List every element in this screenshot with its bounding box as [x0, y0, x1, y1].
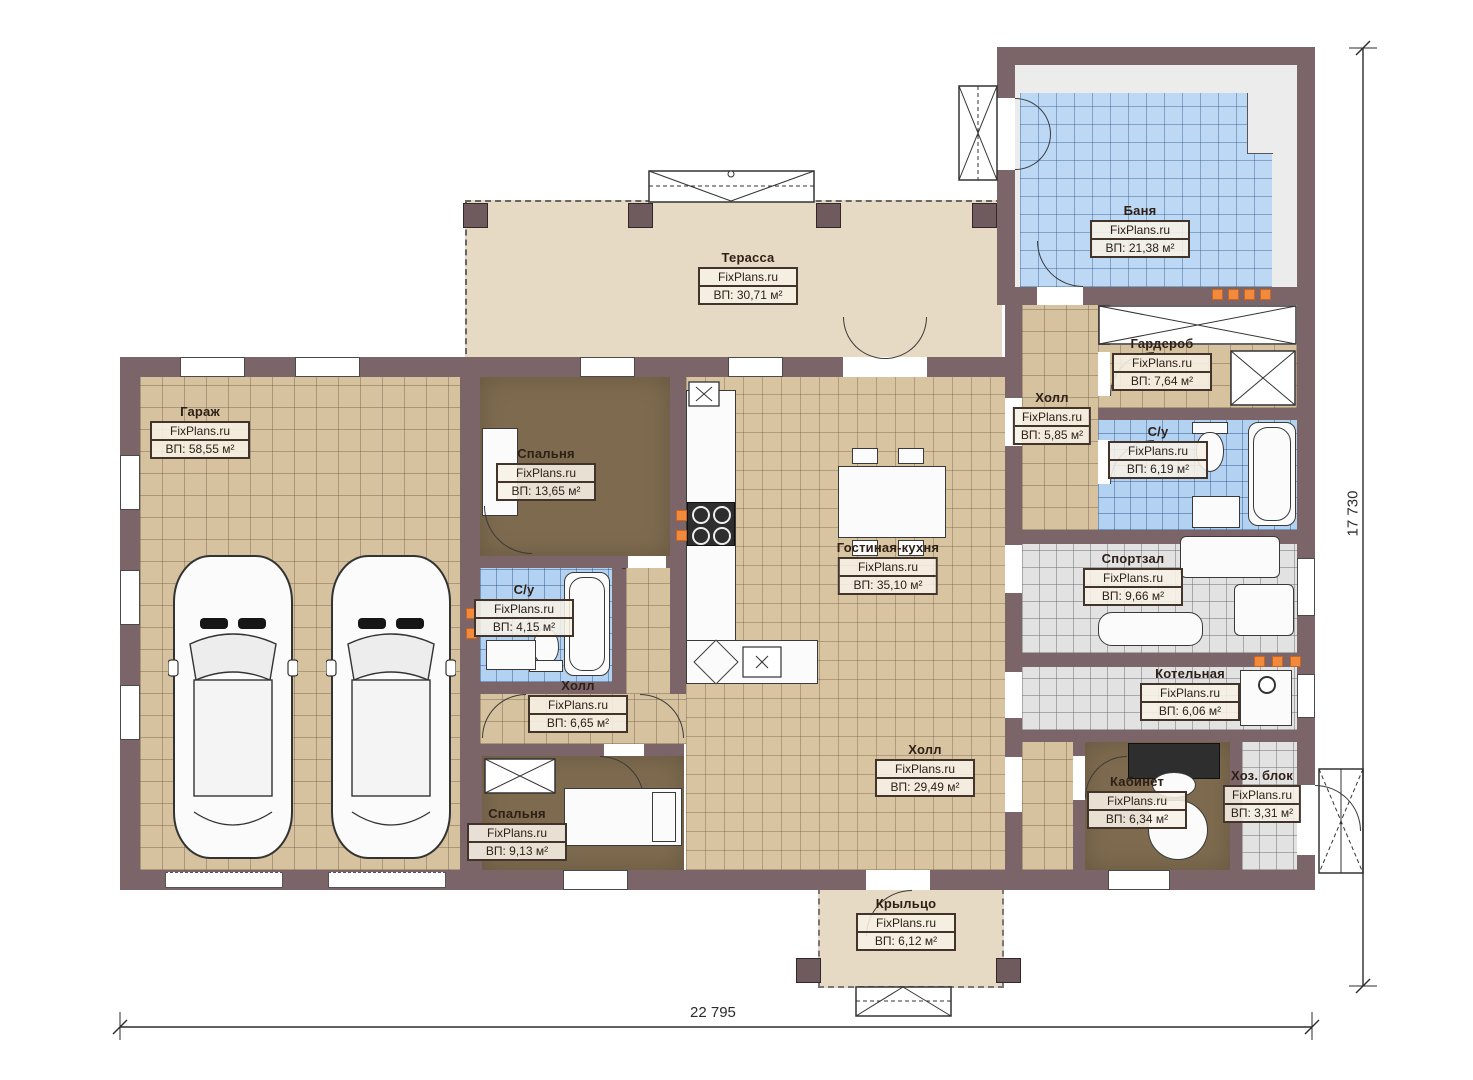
banya-door-opening [997, 98, 1015, 170]
window [563, 870, 628, 890]
room-name: Гараж [150, 404, 250, 419]
room-label-wc-left: С/у FixPlans.ru ВП: 4,15 м² [474, 582, 574, 637]
gym-equipment [1180, 536, 1280, 578]
watermark: FixPlans.ru [700, 269, 796, 287]
banya-ledge [1247, 93, 1273, 154]
window [120, 455, 140, 510]
vent-marker [1272, 656, 1283, 667]
dining-table [838, 466, 946, 538]
window [1108, 870, 1170, 890]
room-name: Баня [1090, 203, 1190, 218]
chair [852, 448, 878, 464]
room-name: Терасса [698, 250, 798, 265]
floor-plan: Гараж FixPlans.ru ВП: 58,55 м² Спальня F… [0, 0, 1473, 1080]
room-area: ВП: 30,71 м² [700, 287, 796, 303]
room-name: Спальня [496, 446, 596, 461]
closet-shelf [484, 758, 556, 794]
room-area: ВП: 6,34 м² [1089, 811, 1185, 827]
room-area: ВП: 9,13 м² [469, 843, 565, 859]
window [1297, 674, 1315, 718]
watermark: FixPlans.ru [1092, 222, 1188, 240]
watermark: FixPlans.ru [476, 601, 572, 619]
watermark: FixPlans.ru [152, 423, 248, 441]
room-name: Спальня [467, 806, 567, 821]
garage-door [165, 872, 283, 888]
window [728, 357, 783, 377]
room-name: Холл [528, 678, 628, 693]
watermark: FixPlans.ru [1015, 409, 1089, 427]
stove-burner [713, 506, 731, 524]
door-opening [604, 744, 644, 756]
vent-marker [676, 510, 687, 521]
fridge [688, 381, 720, 407]
room-label-porch: Крыльцо FixPlans.ru ВП: 6,12 м² [856, 896, 956, 951]
room-label-living-kitchen: Гостиная-кухня FixPlans.ru ВП: 35,10 м² [837, 540, 939, 595]
room-name: Хоз. блок [1223, 768, 1301, 783]
room-area: ВП: 4,15 м² [476, 619, 572, 635]
room-label-boiler: Котельная FixPlans.ru ВП: 6,06 м² [1140, 666, 1240, 721]
room-area: ВП: 13,65 м² [498, 483, 594, 499]
window [580, 357, 635, 377]
exterior-steps [958, 85, 998, 181]
terrace-post [972, 203, 997, 228]
car [326, 552, 456, 862]
door-opening [1005, 672, 1022, 718]
bathtub-inner [1253, 427, 1291, 521]
wall-banya-right [1297, 47, 1315, 305]
wall-banya-left [997, 47, 1015, 305]
room-name: Спортзал [1083, 551, 1183, 566]
terrace-post [463, 203, 488, 228]
room-area: ВП: 58,55 м² [152, 441, 248, 457]
porch-door-opening [866, 870, 930, 890]
dimension-height: 17 730 [1344, 491, 1361, 537]
room-area: ВП: 3,31 м² [1225, 805, 1299, 821]
vent-marker [1228, 289, 1239, 300]
vent-marker [676, 530, 687, 541]
room-label-hall-right: Холл FixPlans.ru ВП: 5,85 м² [1013, 390, 1091, 445]
vent-marker [1254, 656, 1265, 667]
room-label-bedroom-bottom: Спальня FixPlans.ru ВП: 9,13 м² [467, 806, 567, 861]
room-label-banya: Баня FixPlans.ru ВП: 21,38 м² [1090, 203, 1190, 258]
watermark: FixPlans.ru [498, 465, 594, 483]
sink-vanity [486, 640, 536, 670]
watermark: FixPlans.ru [1225, 787, 1299, 805]
room-area: ВП: 6,12 м² [858, 933, 954, 949]
room-label-terrace: Терасса FixPlans.ru ВП: 30,71 м² [698, 250, 798, 305]
room-label-wc-right: С/у FixPlans.ru ВП: 6,19 м² [1108, 424, 1208, 479]
watermark: FixPlans.ru [1114, 355, 1210, 373]
room-label-garage: Гараж FixPlans.ru ВП: 58,55 м² [150, 404, 250, 459]
watermark: FixPlans.ru [858, 915, 954, 933]
room-area: ВП: 5,85 м² [1015, 427, 1089, 443]
dimension-width: 22 795 [690, 1004, 736, 1021]
room-name: Холл [1013, 390, 1091, 405]
door-opening [1073, 756, 1085, 800]
sink [1192, 496, 1240, 528]
watermark: FixPlans.ru [1142, 685, 1238, 703]
room-area: ВП: 29,49 м² [877, 779, 973, 795]
watermark: FixPlans.ru [1085, 570, 1181, 588]
garage-door [328, 872, 446, 888]
watermark: FixPlans.ru [1110, 443, 1206, 461]
room-name: Холл [875, 742, 975, 757]
stove-burner [713, 527, 731, 545]
stove-burner [692, 527, 710, 545]
corridor-floor [1022, 742, 1073, 870]
room-label-gym: Спортзал FixPlans.ru ВП: 9,66 м² [1083, 551, 1183, 606]
room-label-office: Кабинет FixPlans.ru ВП: 6,34 м² [1087, 774, 1187, 829]
corridor-floor [626, 568, 670, 694]
entry-door-opening [843, 357, 927, 377]
vent-marker [1212, 289, 1223, 300]
room-name: Крыльцо [856, 896, 956, 911]
room-area: ВП: 6,06 м² [1142, 703, 1238, 719]
door-opening [1098, 352, 1110, 396]
wall-banya-top [997, 47, 1315, 65]
vent-marker [1290, 656, 1301, 667]
watermark: FixPlans.ru [1089, 793, 1185, 811]
door-opening [1005, 757, 1022, 812]
room-label-utility: Хоз. блок FixPlans.ru ВП: 3,31 м² [1223, 768, 1301, 823]
chair [898, 448, 924, 464]
room-area: ВП: 9,66 м² [1085, 588, 1181, 604]
room-area: ВП: 35,10 м² [840, 577, 936, 593]
car [168, 552, 298, 862]
porch-post [996, 958, 1021, 983]
room-area: ВП: 7,64 м² [1114, 373, 1210, 389]
porch-post [796, 958, 821, 983]
door-opening [1037, 287, 1083, 305]
window [1297, 558, 1315, 616]
watermark: FixPlans.ru [530, 697, 626, 715]
stove-burner [692, 506, 710, 524]
watermark: FixPlans.ru [469, 825, 565, 843]
room-name: Кабинет [1087, 774, 1187, 789]
boiler-dial [1258, 676, 1276, 694]
room-area: ВП: 21,38 м² [1092, 240, 1188, 256]
gym-bench [1098, 612, 1203, 646]
vent-marker [1260, 289, 1271, 300]
closet-shelf [1230, 350, 1296, 406]
terrace-post [816, 203, 841, 228]
window [120, 570, 140, 625]
window [180, 357, 245, 377]
room-area: ВП: 6,65 м² [530, 715, 626, 731]
window [120, 685, 140, 740]
wall-wardrobe-bottom [1098, 408, 1297, 420]
gym-equipment [1234, 584, 1294, 636]
wall-boiler-bottom [1022, 730, 1297, 742]
bathtub-inner [569, 577, 605, 671]
terrace-post [628, 203, 653, 228]
vent-marker [1244, 289, 1255, 300]
watermark: FixPlans.ru [840, 559, 936, 577]
room-label-bedroom-top: Спальня FixPlans.ru ВП: 13,65 м² [496, 446, 596, 501]
cooktop-unit [742, 646, 782, 678]
room-label-hall-main: Холл FixPlans.ru ВП: 29,49 м² [875, 742, 975, 797]
door-opening [1005, 545, 1022, 593]
room-label-hall-left: Холл FixPlans.ru ВП: 6,65 м² [528, 678, 628, 733]
room-name: Гостиная-кухня [837, 540, 939, 555]
room-label-wardrobe: Гардероб FixPlans.ru ВП: 7,64 м² [1112, 336, 1212, 391]
room-name: С/у [474, 582, 574, 597]
room-name: С/у [1108, 424, 1208, 439]
room-name: Котельная [1140, 666, 1240, 681]
porch-steps [855, 986, 952, 1017]
window [295, 357, 360, 377]
room-area: ВП: 6,19 м² [1110, 461, 1206, 477]
watermark: FixPlans.ru [877, 761, 973, 779]
bed-pillow [652, 792, 676, 842]
room-name: Гардероб [1112, 336, 1212, 351]
wall-bedroom2-top [460, 744, 684, 756]
terrace-steps [648, 170, 815, 203]
door-opening [628, 556, 666, 568]
